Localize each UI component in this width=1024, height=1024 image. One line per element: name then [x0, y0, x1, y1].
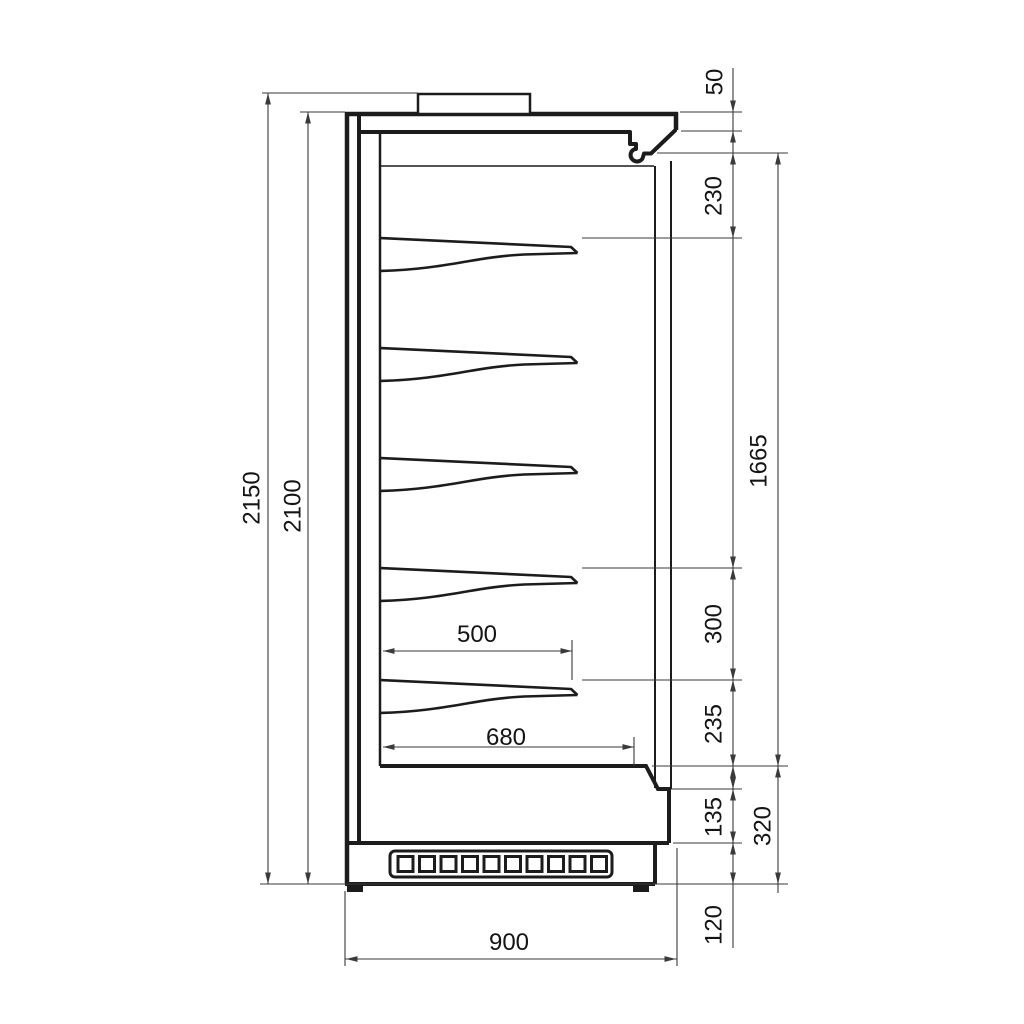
vent-slot — [506, 857, 521, 872]
dimension-arrowhead — [730, 873, 736, 885]
vent-slot — [549, 857, 564, 872]
dimension-arrowhead — [730, 153, 736, 165]
dimension-arrowhead — [730, 843, 736, 855]
drawing-canvas: 2150 2100 50 230 1665 300 235 135 320 12… — [0, 0, 1024, 1024]
cabinet — [345, 94, 676, 892]
dimension-arrowhead — [730, 766, 736, 778]
dimension-arrowhead — [730, 680, 736, 692]
label-base-section-height: 320 — [749, 806, 776, 846]
dimension-arrowhead — [730, 101, 736, 113]
dimension-arrowhead — [775, 153, 781, 165]
foot-left — [347, 884, 363, 892]
shelf-2-top — [380, 348, 578, 363]
shelf-4-underside — [380, 583, 578, 601]
dimension-arrowhead — [623, 744, 635, 750]
vent-slot — [570, 857, 585, 872]
vent-slot — [441, 857, 456, 872]
dimension-arrowhead — [305, 112, 311, 124]
shelf-3-top — [380, 458, 578, 473]
dimension-arrowhead — [265, 873, 271, 885]
dimension-arrowhead — [730, 131, 736, 143]
label-display-opening-height: 1665 — [745, 434, 772, 487]
dimension-arrowhead — [665, 956, 677, 962]
shelf-2-underside — [380, 363, 578, 381]
deck-and-lower-front — [380, 766, 669, 843]
label-top-unit-height: 50 — [701, 69, 728, 96]
shelf-1-underside — [380, 253, 578, 271]
dimension-arrowhead — [265, 93, 271, 105]
vent-slot — [398, 857, 413, 872]
vent-grille — [390, 851, 612, 877]
dimension-arrowhead — [730, 568, 736, 580]
dimension-arrowhead — [730, 832, 736, 844]
top-unit-box — [418, 94, 530, 114]
dimension-arrowhead — [305, 873, 311, 885]
canopy-profile — [359, 131, 675, 162]
cabinet-body-outline — [347, 114, 676, 884]
shelf-4-top — [380, 568, 578, 583]
vent-slot — [484, 857, 499, 872]
label-body-height: 2100 — [279, 479, 306, 532]
dimension-arrowhead — [730, 669, 736, 681]
label-plinth-height: 120 — [700, 905, 727, 945]
shelf-3-underside — [380, 473, 578, 491]
label-shelf-depth: 500 — [457, 621, 497, 648]
dimension-arrowhead — [775, 755, 781, 767]
shelf-1-top — [380, 238, 578, 253]
dimension-arrowhead — [561, 648, 573, 654]
dimension-arrowhead — [775, 873, 781, 885]
vent-grille-slots — [398, 857, 607, 872]
label-deck-depth: 680 — [486, 724, 526, 751]
vent-slot — [592, 857, 607, 872]
technical-drawing: 2150 2100 50 230 1665 300 235 135 320 12… — [0, 0, 1024, 1024]
dimension-arrowhead — [730, 227, 736, 239]
label-front-lower-panel: 135 — [700, 797, 727, 837]
vent-slot — [420, 857, 435, 872]
label-overall-depth: 900 — [489, 929, 529, 956]
dimension-arrowhead — [383, 744, 395, 750]
dimension-arrowhead — [730, 755, 736, 767]
dimension-arrowhead — [730, 778, 736, 790]
dimension-arrowhead — [346, 956, 358, 962]
vent-slot — [463, 857, 478, 872]
shelf-5-top — [380, 680, 578, 695]
dimension-arrowhead — [775, 766, 781, 778]
shelf-5-underside — [380, 695, 578, 713]
dimension-labels: 2150 2100 50 230 1665 300 235 135 320 12… — [238, 69, 776, 956]
label-canopy-to-top-shelf: 230 — [700, 176, 727, 216]
foot-right — [633, 884, 649, 892]
label-overall-height: 2150 — [238, 471, 265, 524]
label-shelf-spacing: 300 — [700, 604, 727, 644]
vent-slot — [527, 857, 542, 872]
dimension-arrowhead — [730, 789, 736, 801]
dimension-arrowhead — [383, 648, 395, 654]
label-bottom-shelf-to-deck: 235 — [700, 704, 727, 744]
dimension-arrowhead — [730, 557, 736, 569]
